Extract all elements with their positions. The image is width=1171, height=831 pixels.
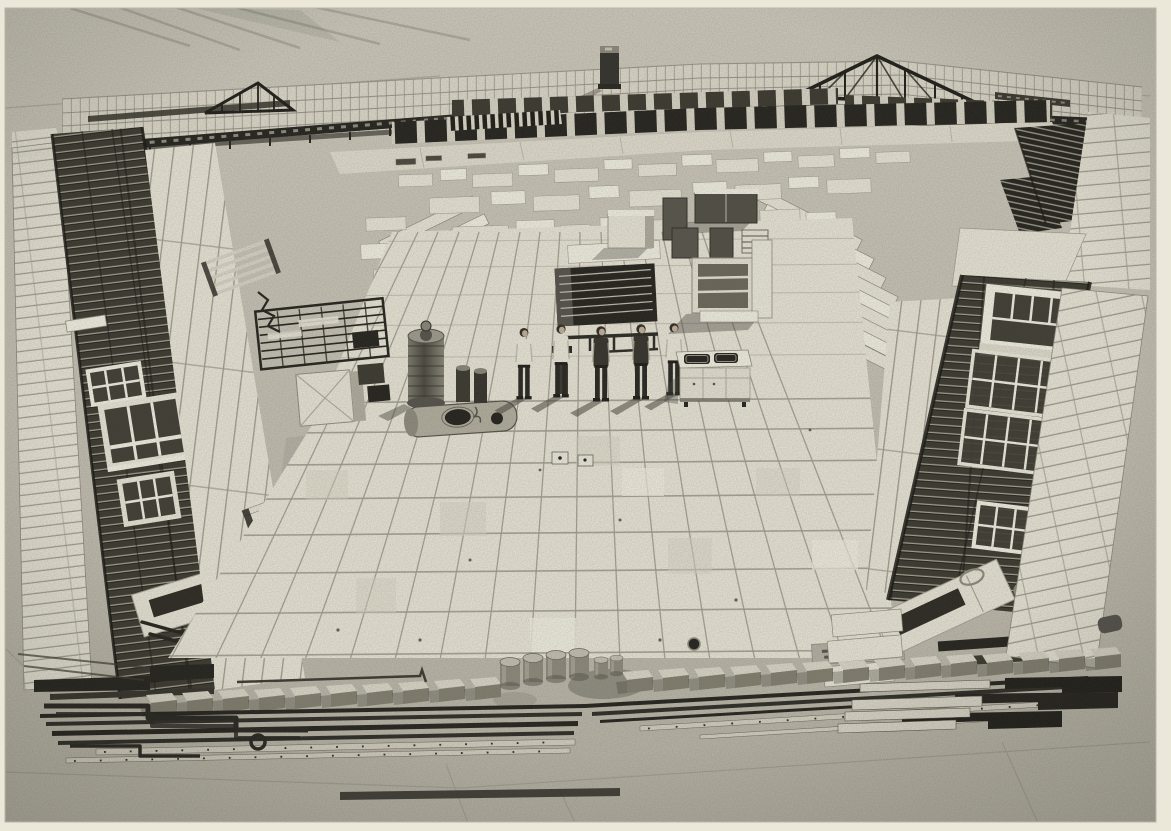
photo-canvas xyxy=(0,0,1171,831)
vignette xyxy=(5,8,1156,822)
prefab-layout-photograph: A complete prefab building kit knolled o… xyxy=(0,0,1171,831)
